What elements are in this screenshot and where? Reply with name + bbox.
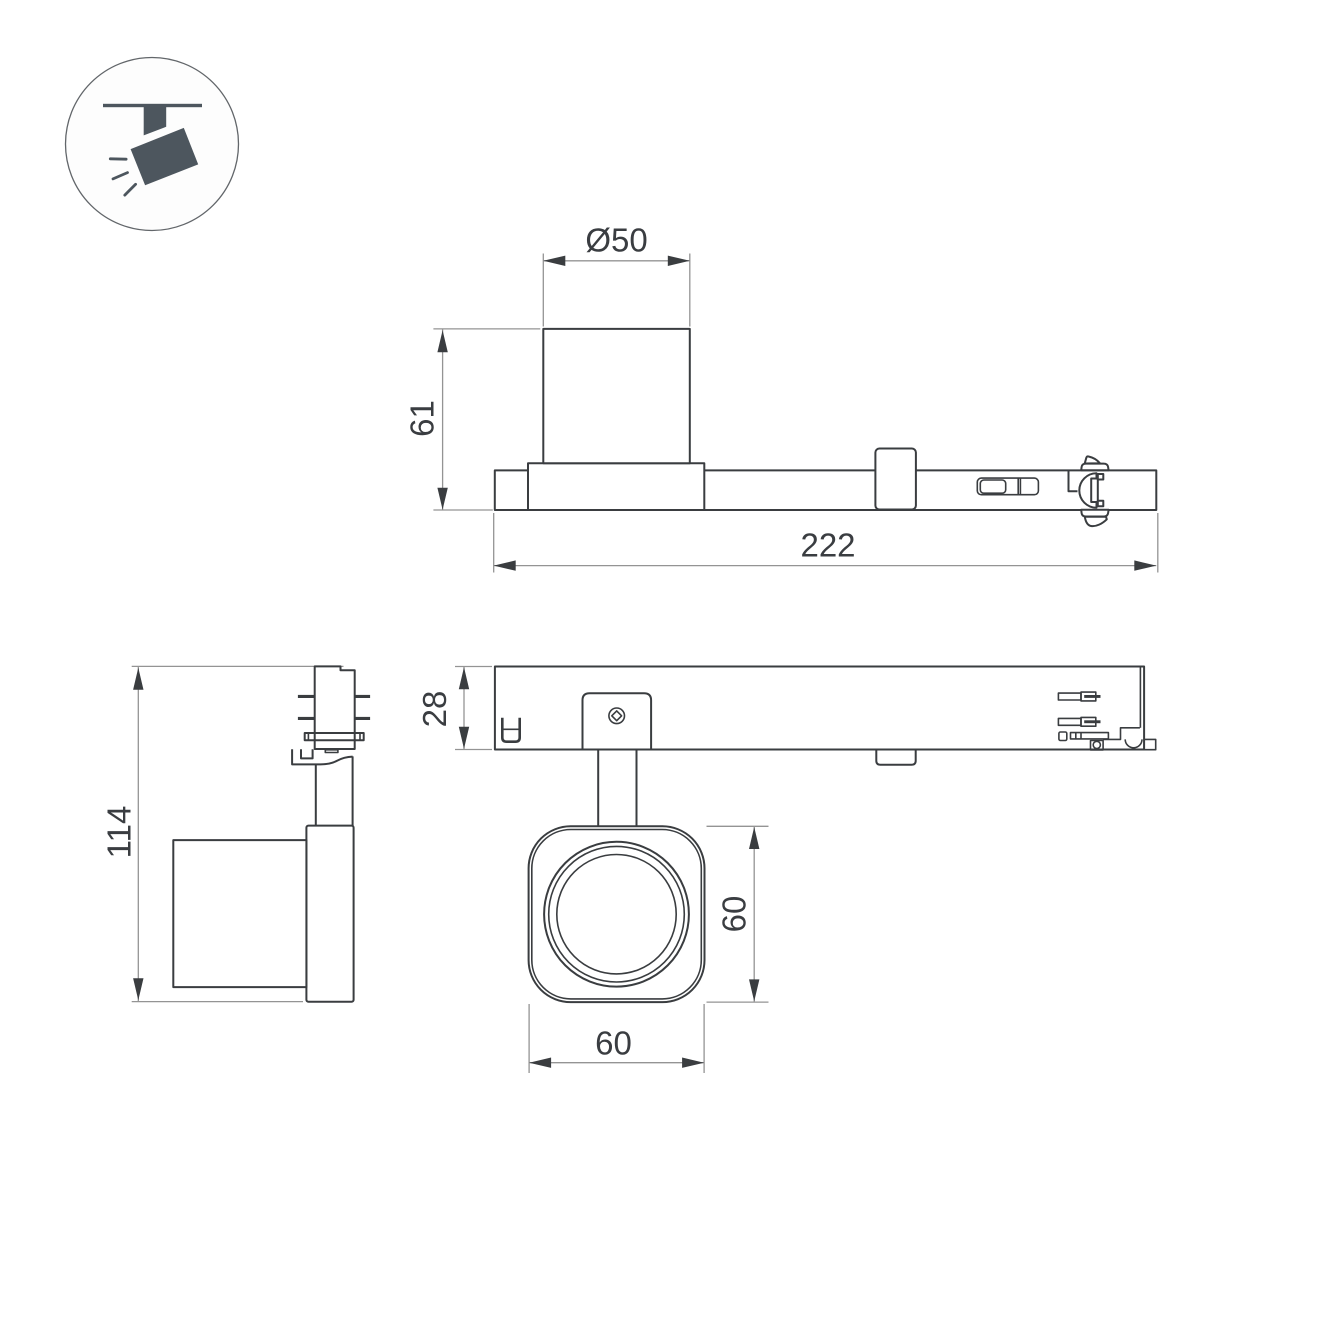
svg-text:60: 60 (595, 1025, 632, 1062)
svg-text:28: 28 (416, 691, 453, 728)
svg-text:222: 222 (800, 527, 855, 564)
svg-text:61: 61 (404, 400, 441, 437)
svg-text:60: 60 (716, 896, 753, 933)
svg-text:Ø50: Ø50 (585, 222, 647, 259)
svg-text:114: 114 (101, 806, 138, 859)
